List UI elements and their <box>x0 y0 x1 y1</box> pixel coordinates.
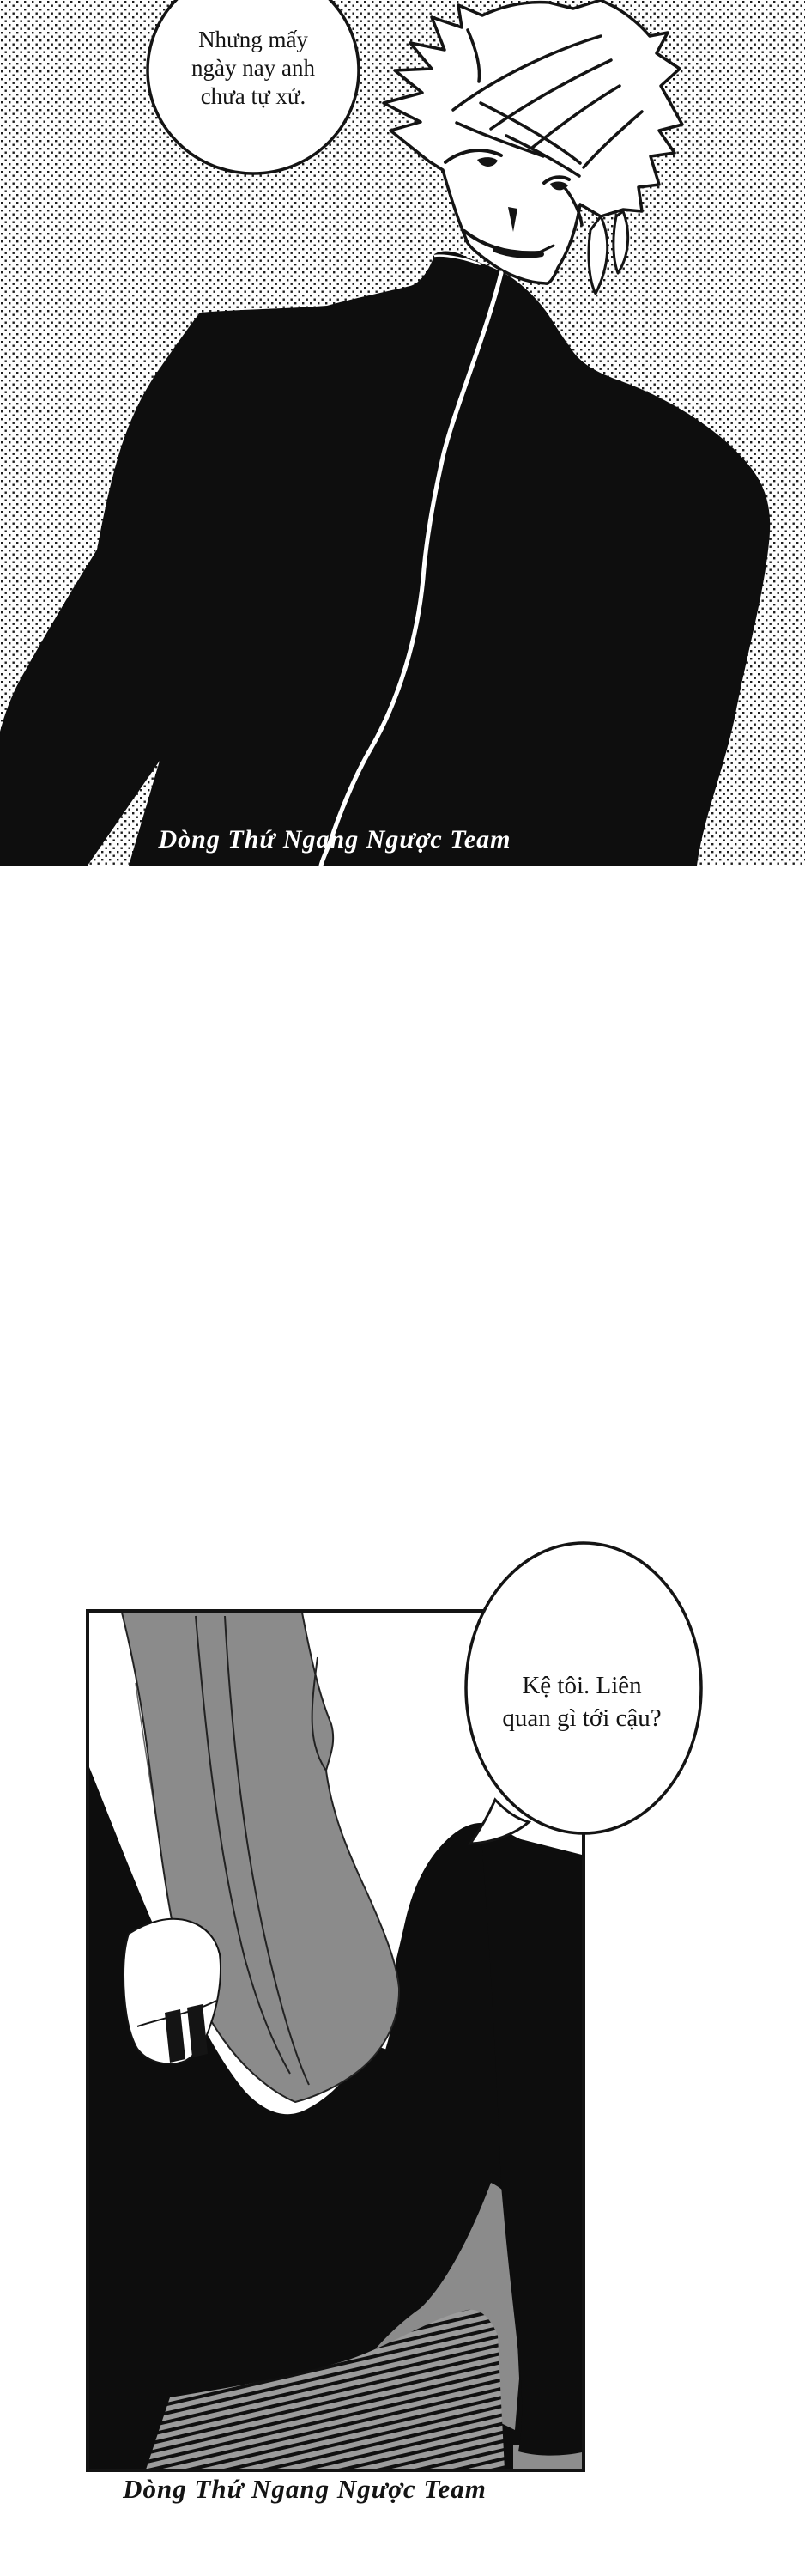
bubble-line: quan gì tới cậu? <box>466 1702 698 1735</box>
bubble-line: ngày nay anh <box>150 54 356 82</box>
bubble-line: Nhưng mấy <box>150 26 356 54</box>
speech-bubble-top-text: Nhưng mấy ngày nay anh chưa tự xử. <box>150 26 356 111</box>
watermark-top: Dòng Thứ Ngang Ngược Team <box>146 825 524 854</box>
striped-sleeve-cuff <box>124 1919 221 2064</box>
manga-page: { "comic": { "panel1": { "bubble": { "li… <box>0 0 805 2576</box>
bubble-line: Kệ tôi. Liên <box>466 1669 698 1702</box>
speech-bubble-bottom-text: Kệ tôi. Liên quan gì tới cậu? <box>466 1669 698 1735</box>
bubble-line: chưa tự xử. <box>150 82 356 111</box>
panel-top <box>0 0 805 866</box>
watermark-bottom: Dòng Thứ Ngang Ngược Team <box>116 2474 493 2505</box>
